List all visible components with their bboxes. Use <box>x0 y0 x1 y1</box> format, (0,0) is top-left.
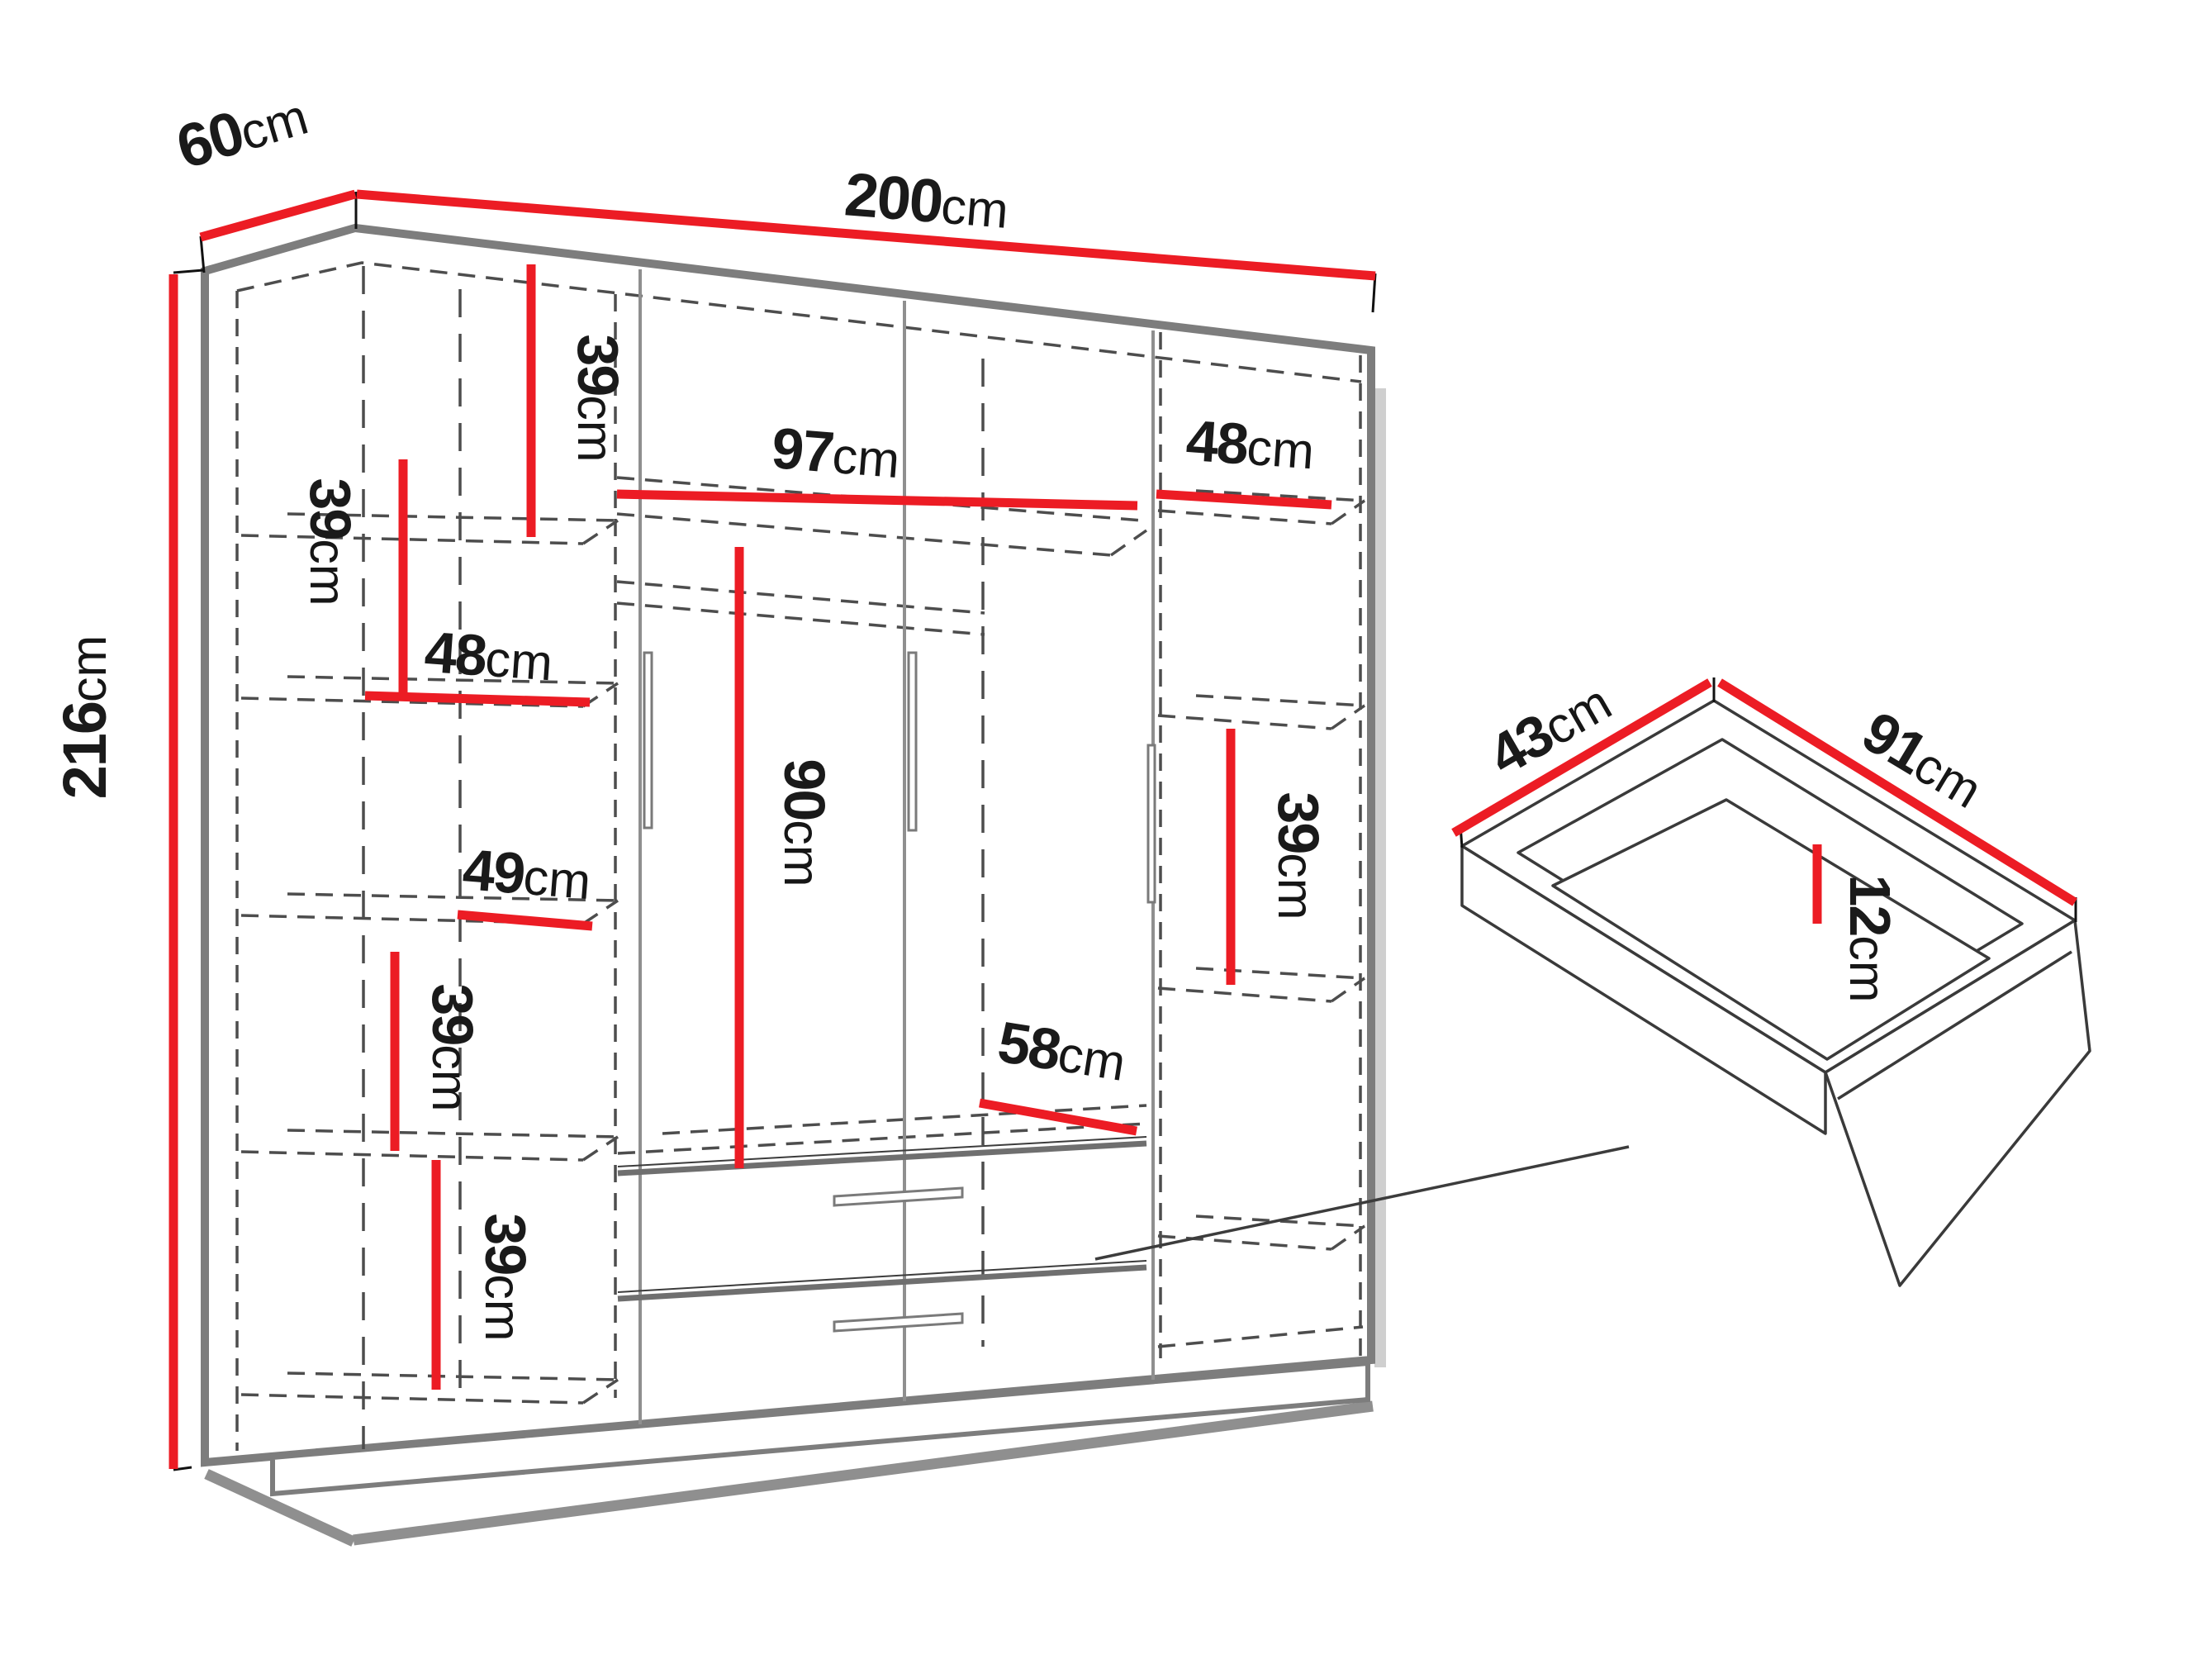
label-39-left-bottom: 39cm <box>473 1213 538 1341</box>
door-handle-2 <box>909 653 916 830</box>
label-12-drawer-height: 12cm <box>1838 874 1902 1002</box>
drawer-detail <box>1454 677 2090 1286</box>
wardrobe-dimension-diagram: 60cm 200cm 216cm 39cm 39cm 48cm 49cm 39c… <box>0 0 2212 1659</box>
label-39-right: 39cm <box>1266 791 1331 920</box>
label-39-left-top: 39cm <box>566 334 630 462</box>
diagram-canvas: 60cm 200cm 216cm 39cm 39cm 48cm 49cm 39c… <box>0 0 2212 1659</box>
label-39-left-upper: 39cm <box>298 478 363 606</box>
label-height-216: 216cm <box>50 635 119 800</box>
label-depth-60: 60cm <box>169 78 315 182</box>
label-39-left-lower: 39cm <box>420 983 485 1111</box>
door-handle-3 <box>1148 745 1155 902</box>
label-width-200: 200cm <box>843 159 1012 241</box>
door-handle-1 <box>644 653 652 828</box>
label-90-hanging: 90cm <box>772 758 837 887</box>
